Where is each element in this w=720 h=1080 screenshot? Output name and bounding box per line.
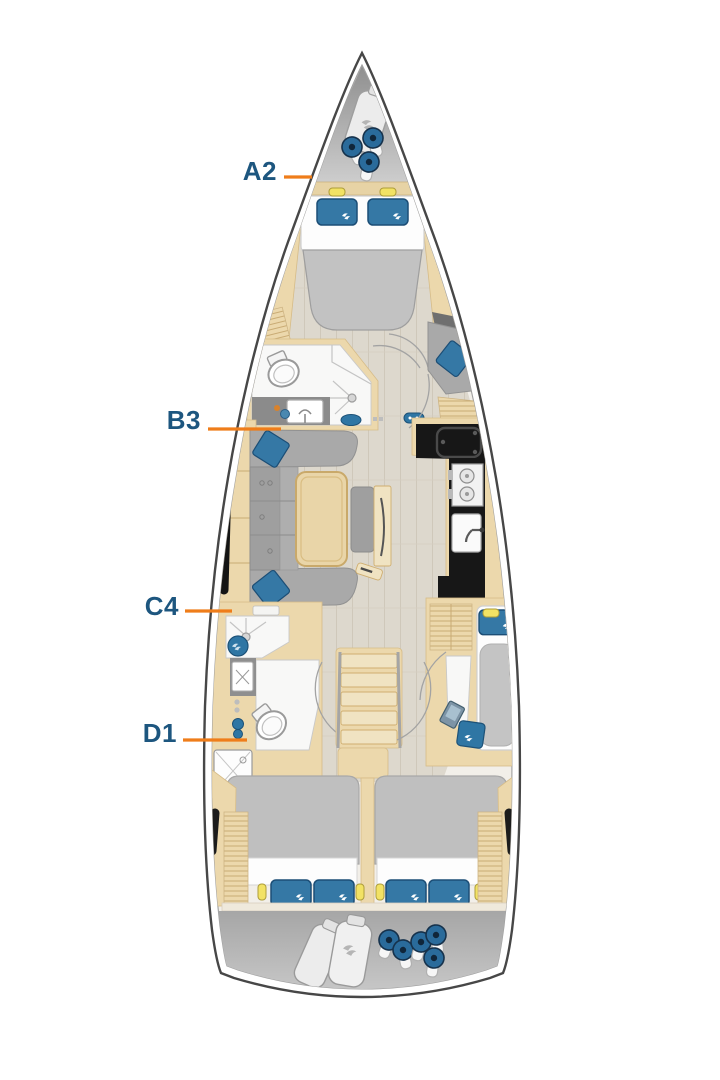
vent-marks — [373, 417, 377, 421]
sink-icon — [232, 662, 253, 691]
reading-light-icon — [258, 884, 266, 900]
engine-box — [338, 748, 388, 778]
vberth-duvet — [303, 250, 422, 330]
label-a2: A2 — [243, 156, 277, 186]
bath-mat — [341, 415, 361, 426]
stern-wood-column-starboard — [478, 812, 502, 906]
pillow-icon — [314, 880, 354, 906]
label-b3: B3 — [167, 405, 201, 435]
accessory-blue — [233, 719, 244, 730]
accessory-dot-blue — [281, 410, 290, 419]
reading-light-icon — [329, 188, 345, 196]
sink-icon — [287, 400, 323, 423]
yacht-layout-plan: { "plan": { "title_semantic": "sailing-y… — [0, 0, 720, 1080]
pillow-icon — [429, 880, 469, 906]
galley-sink-icon — [452, 514, 485, 552]
reading-light-icon — [376, 884, 384, 900]
pillow-icon — [386, 880, 426, 906]
knob — [234, 707, 239, 712]
label-c4: C4 — [145, 591, 179, 621]
reading-light-icon — [356, 884, 364, 900]
pillow-icon — [271, 880, 311, 906]
pillow-icon — [317, 199, 357, 225]
knob — [234, 699, 239, 704]
stern-wood-column-port — [224, 812, 248, 906]
pillow-icon — [368, 199, 408, 225]
label-d1: D1 — [143, 718, 177, 748]
reading-light-icon — [380, 188, 396, 196]
vent-marks — [379, 417, 383, 421]
round-mat — [228, 636, 248, 656]
wardrobe-shelves — [430, 604, 472, 650]
seat-pad — [456, 720, 485, 748]
accessory-dot — [274, 405, 280, 411]
sofa-side-seats — [250, 467, 298, 570]
anchor-locker — [304, 66, 420, 195]
vent-strip — [253, 606, 279, 615]
stern-bulkhead-band — [222, 903, 508, 911]
reading-light-icon — [483, 609, 499, 617]
floorplan-svg: A2 B3 C4 D1 — [0, 0, 720, 1080]
bulkhead-trim — [304, 182, 420, 195]
stove-icon — [448, 464, 483, 506]
table-icon — [296, 472, 347, 566]
accessory-blue — [234, 730, 243, 739]
